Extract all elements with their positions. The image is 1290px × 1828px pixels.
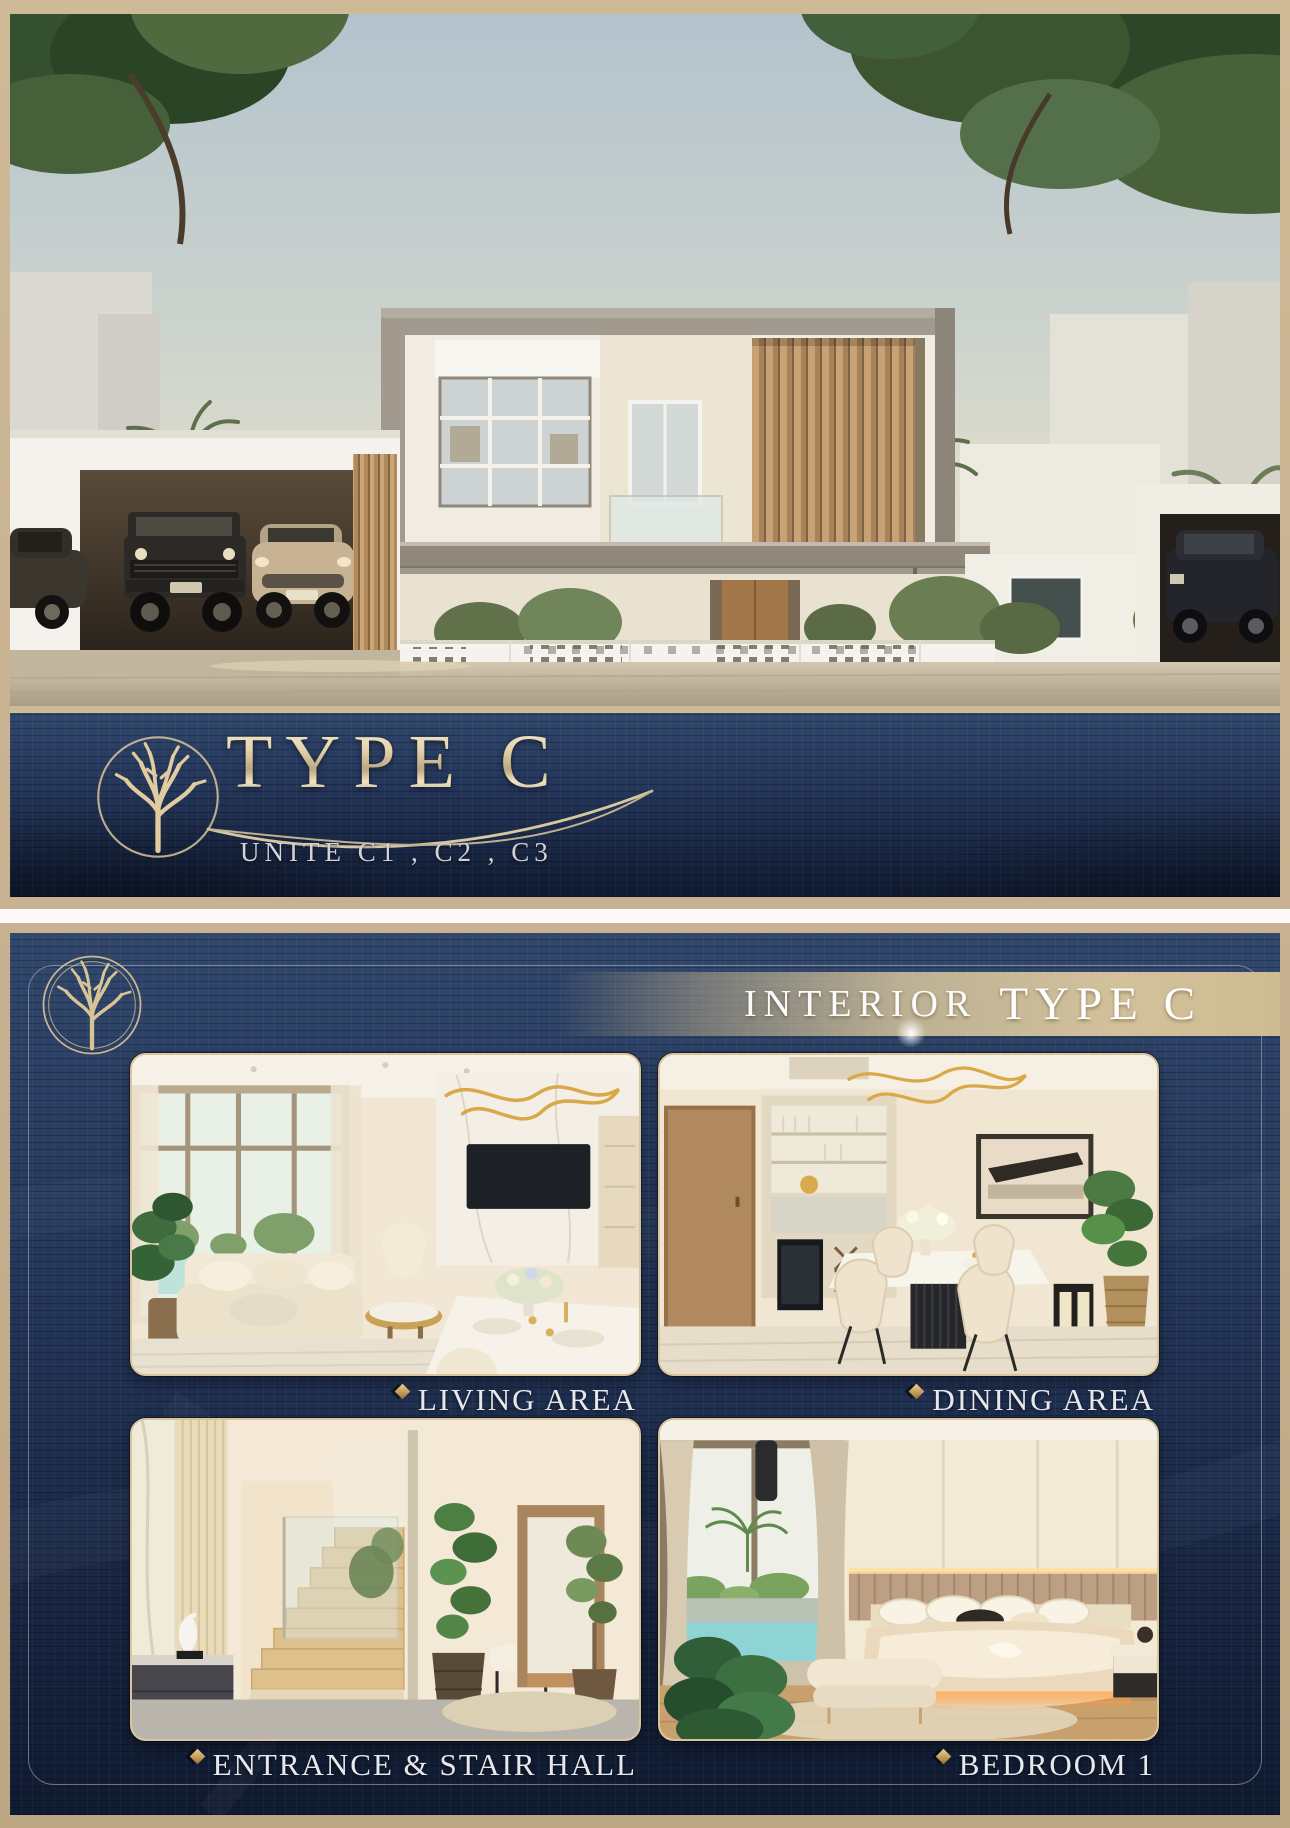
living-area-caption: LIVING AREA	[130, 1379, 637, 1421]
unite-subtitle: UNITE C1 , C2 , C3	[240, 837, 553, 868]
bedroom-1-photo	[658, 1418, 1159, 1741]
entrance-stair-hall-photo	[130, 1418, 641, 1741]
interior-header-prefix: INTERIOR	[744, 982, 977, 1026]
interior-header-bar: INTERIOR TYPE C	[556, 972, 1280, 1036]
brochure-page: TYPE C UNITE C1 , C2 , C3 INTERIOR TYPE …	[0, 0, 1290, 1828]
exterior-photo	[10, 14, 1280, 710]
dining-area-photo	[658, 1053, 1159, 1376]
entrance-stair-hall-caption: ENTRANCE & STAIR HALL	[130, 1744, 637, 1786]
type-c-banner: TYPE C UNITE C1 , C2 , C3	[10, 710, 1280, 897]
bedroom-1-caption: BEDROOM 1	[658, 1744, 1155, 1786]
interior-header-main: TYPE C	[999, 977, 1202, 1031]
diamond-bullet-icon	[395, 1383, 411, 1399]
interior-panel: INTERIOR TYPE C	[10, 933, 1280, 1815]
diamond-bullet-icon	[935, 1748, 951, 1764]
dining-area-caption: DINING AREA	[658, 1379, 1155, 1421]
type-c-title: TYPE C	[226, 719, 564, 806]
tree-logo-icon	[94, 733, 222, 861]
house-render-illustration	[10, 14, 1280, 710]
living-area-photo	[130, 1053, 641, 1376]
diamond-bullet-icon	[189, 1748, 205, 1764]
diamond-bullet-icon	[909, 1383, 925, 1399]
panel-divider	[0, 909, 1290, 923]
tree-logo-icon	[40, 953, 144, 1057]
exterior-panel: TYPE C UNITE C1 , C2 , C3	[10, 14, 1280, 897]
